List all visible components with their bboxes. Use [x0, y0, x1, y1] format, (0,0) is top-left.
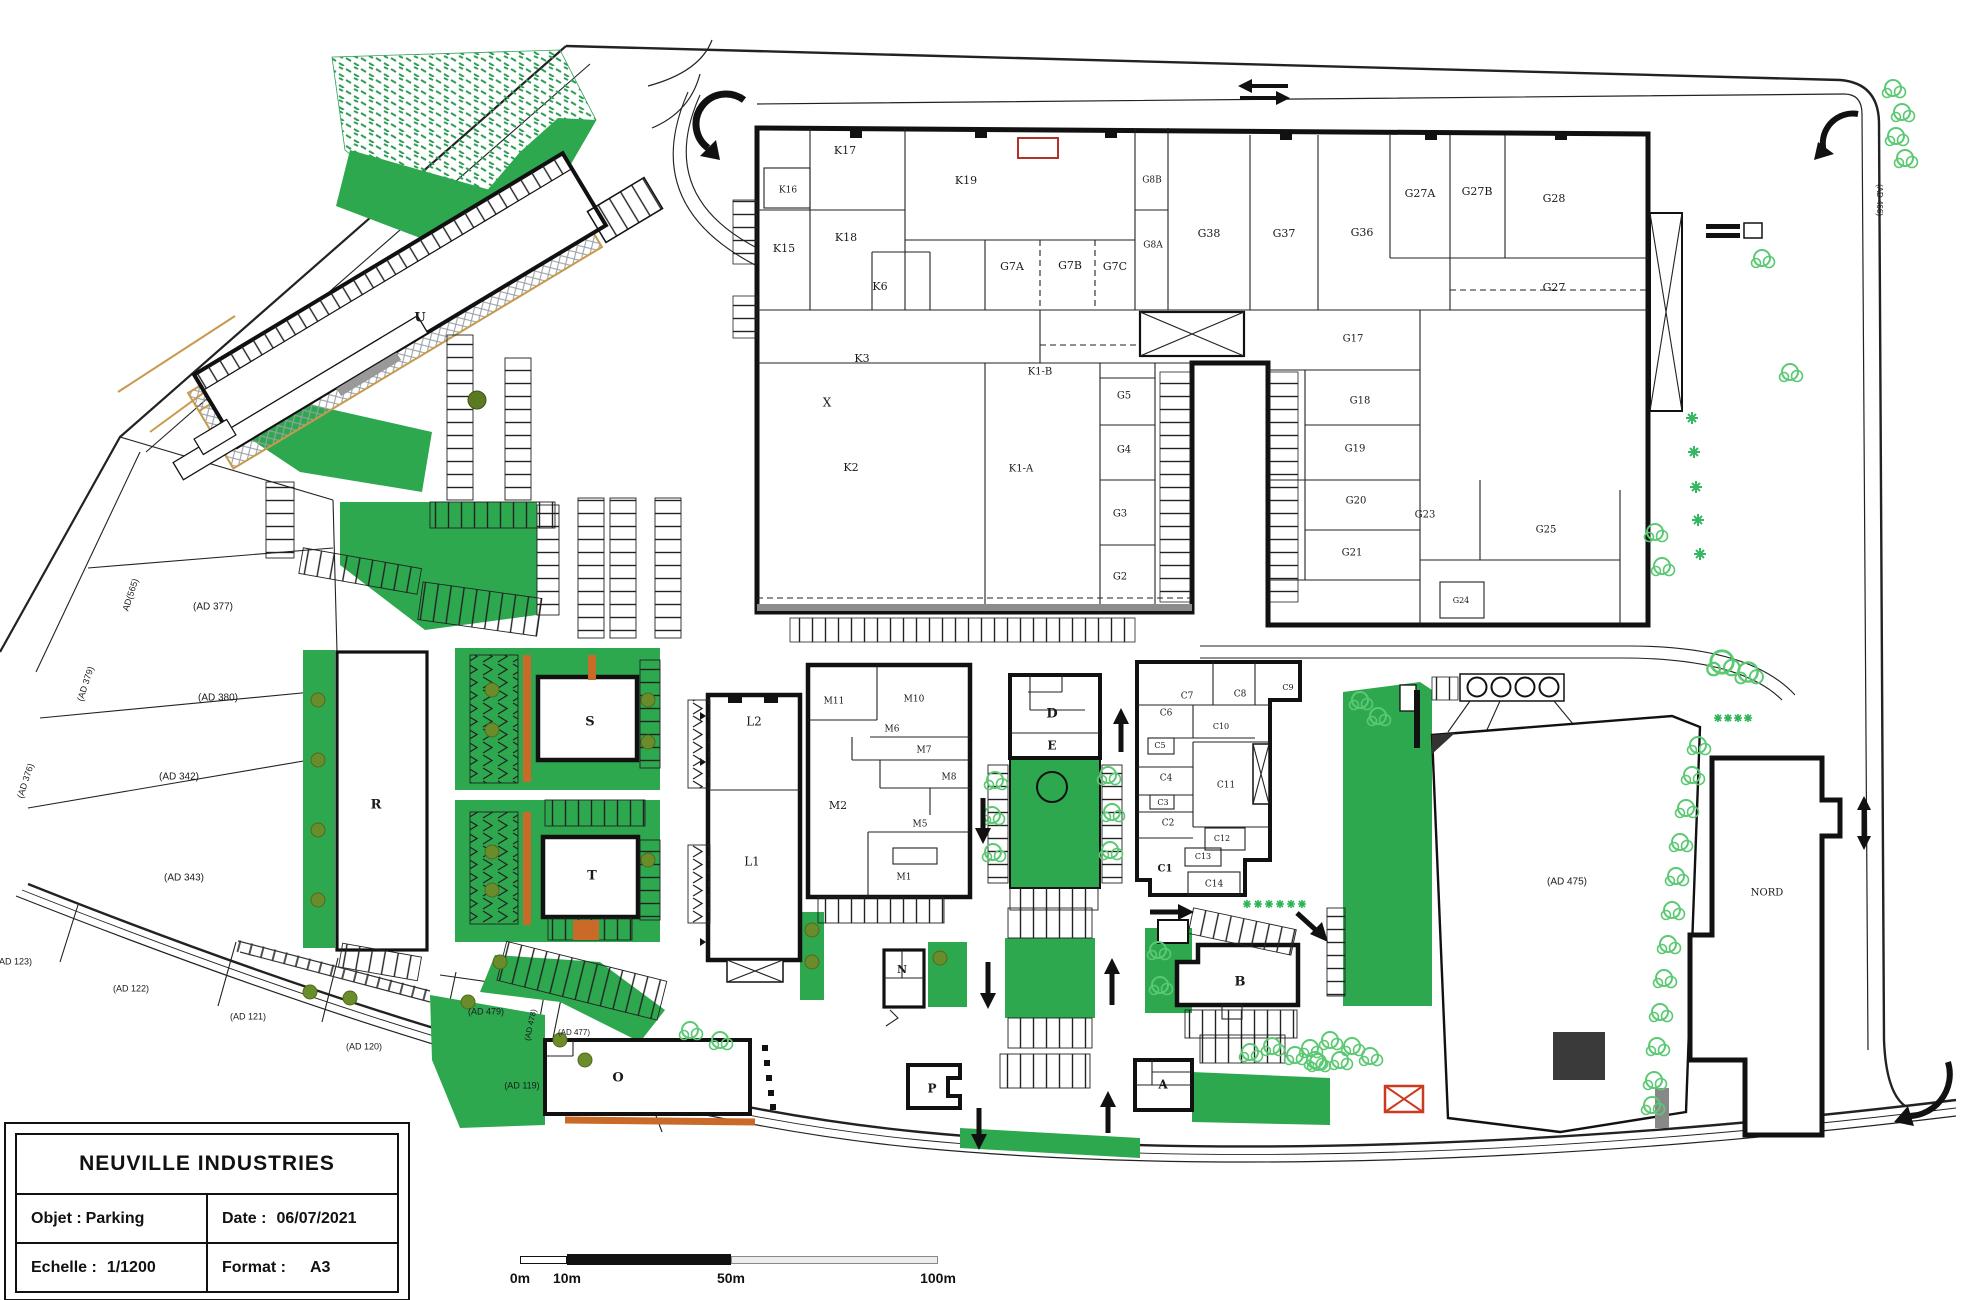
right-zone	[1200, 646, 1840, 1135]
label-c1: C1	[1158, 864, 1173, 875]
label-ad342: (AD 342)	[159, 772, 199, 783]
label-g17: G17	[1343, 334, 1364, 345]
stairwell-right-icon	[1650, 213, 1682, 411]
label-m7: M7	[917, 746, 932, 756]
label-m5: M5	[913, 820, 928, 830]
label-g3: G3	[1113, 509, 1127, 520]
label-g7c: G7C	[1103, 260, 1127, 273]
label-m8: M8	[942, 773, 957, 783]
label-c9: C9	[1282, 683, 1293, 692]
label-e: E	[1047, 739, 1056, 753]
label-a: A	[1157, 1078, 1168, 1092]
label-m11: M11	[824, 697, 845, 707]
site-plan-page: K17K16K15K18K6K19G8BG8AG7AG7BG7CG38G37G3…	[0, 0, 1984, 1300]
label-k16: K16	[779, 186, 797, 196]
label-g36: G36	[1351, 226, 1374, 239]
label-c11: C11	[1217, 781, 1235, 791]
label-g8a: G8A	[1143, 241, 1163, 251]
label-ad123: (AD 123)	[0, 956, 32, 966]
curved-arrow-icon	[696, 94, 744, 160]
label-k17: K17	[834, 144, 856, 157]
label-k6: K6	[872, 280, 887, 293]
objet-cell: Objet :Parking	[17, 1195, 206, 1242]
label-ad380: (AD 380)	[198, 693, 238, 704]
label-k3: K3	[854, 352, 869, 365]
building-n	[884, 950, 924, 1026]
building-o	[545, 1040, 776, 1114]
curved-arrow-icon	[1814, 114, 1858, 160]
roundabout	[1432, 674, 1578, 732]
label-ad477: (AD 477)	[558, 1028, 590, 1037]
label-m1: M1	[897, 873, 912, 883]
objet-value: Parking	[86, 1210, 145, 1228]
site-plan-drawing: K17K16K15K18K6K19G8BG8AG7AG7BG7CG38G37G3…	[0, 0, 1984, 1300]
label-ad475: (AD 475)	[1547, 877, 1587, 888]
label-c13: C13	[1195, 852, 1211, 861]
label-m2: M2	[829, 799, 847, 812]
label-g7a: G7A	[1000, 260, 1025, 273]
label-t: T	[587, 869, 597, 884]
date-label: Date :	[222, 1210, 266, 1228]
label-g27b: G27B	[1462, 185, 1493, 198]
label-c5: C5	[1154, 741, 1165, 750]
label-ad119: (AD 119)	[504, 1080, 539, 1090]
building-l	[700, 695, 800, 982]
label-g4: G4	[1117, 445, 1131, 456]
building-nord	[1690, 758, 1840, 1135]
label-m6: M6	[885, 725, 900, 735]
stairwell-icon	[1140, 312, 1244, 356]
label-k1a: K1-A	[1009, 464, 1034, 475]
label-g8b: G8B	[1142, 176, 1162, 186]
echelle-label: Echelle :	[31, 1259, 97, 1277]
scale-100m: 100m	[920, 1270, 956, 1286]
label-g20: G20	[1346, 496, 1367, 507]
label-ad122: (AD 122)	[113, 983, 149, 993]
arrow-down-right-icon	[1297, 913, 1328, 942]
label-c6: C6	[1160, 709, 1173, 719]
label-g7b: G7B	[1058, 259, 1082, 272]
title-block: NEUVILLE INDUSTRIES Objet :Parking Date …	[4, 1122, 410, 1300]
label-k1b: K1-B	[1028, 367, 1053, 378]
label-n: N	[897, 963, 907, 976]
scale-0m: 0m	[510, 1270, 530, 1286]
label-m10: M10	[904, 695, 925, 705]
label-c4: C4	[1160, 774, 1173, 784]
curved-arrow-icon	[1894, 1062, 1950, 1126]
label-c2: C2	[1162, 819, 1175, 829]
label-g25: G25	[1536, 525, 1557, 536]
label-g18: G18	[1350, 396, 1371, 407]
company-title: NEUVILLE INDUSTRIES	[17, 1135, 397, 1193]
kiosk-box	[1158, 920, 1188, 943]
format-cell: Format : A3	[206, 1244, 397, 1291]
objet-label: Objet :	[31, 1210, 82, 1228]
label-g21: G21	[1342, 548, 1363, 559]
label-l2: L2	[746, 715, 762, 729]
label-ad479: (AD 479)	[468, 1006, 504, 1016]
label-c12: C12	[1214, 834, 1230, 843]
label-o: O	[612, 1071, 623, 1086]
label-k19: K19	[955, 174, 977, 187]
label-g27: G27	[1543, 281, 1566, 294]
label-k18: K18	[835, 231, 857, 244]
label-ad376: (AD 376)	[15, 762, 36, 799]
label-g27a: G27A	[1405, 187, 1437, 200]
label-g37: G37	[1273, 227, 1296, 240]
label-g19: G19	[1345, 444, 1366, 455]
label-g5: G5	[1117, 391, 1131, 402]
arrow-right-icon	[1150, 904, 1194, 920]
arrow-up-icon	[1100, 1091, 1116, 1133]
echelle-value: 1/1200	[107, 1259, 156, 1277]
arrow-updown-icon	[1857, 796, 1871, 850]
label-c3: C3	[1157, 798, 1168, 807]
label-g28: G28	[1543, 192, 1566, 205]
dark-structure	[1553, 1032, 1605, 1080]
label-ad565: AD(565)	[120, 577, 140, 612]
label-d: D	[1046, 707, 1057, 722]
label-xmark: X	[823, 396, 832, 410]
red-cross-box	[1385, 1086, 1423, 1112]
tree-symbol	[468, 391, 486, 409]
label-ad121: (AD 121)	[230, 1011, 266, 1021]
arrow-up-icon	[1113, 708, 1129, 752]
arrow-up-icon	[1104, 958, 1120, 1005]
label-ad120: (AD 120)	[346, 1041, 382, 1051]
building-complex	[733, 128, 1682, 642]
label-g23: G23	[1415, 510, 1436, 521]
label-r: R	[371, 798, 382, 813]
car-icon	[1706, 223, 1762, 238]
arrow-down-icon	[980, 962, 996, 1009]
label-g38: G38	[1198, 227, 1221, 240]
label-s: S	[585, 715, 594, 730]
title-block-inner: NEUVILLE INDUSTRIES Objet :Parking Date …	[15, 1133, 399, 1293]
parcel-ad475	[1432, 716, 1700, 1132]
two-way-arrow-icon	[1238, 79, 1290, 105]
scale-50m: 50m	[717, 1270, 745, 1286]
label-c14: C14	[1205, 880, 1224, 890]
echelle-cell: Echelle : 1/1200	[17, 1244, 206, 1291]
label-u: U	[414, 311, 426, 326]
building-r	[337, 652, 427, 950]
label-b: B	[1235, 975, 1246, 990]
label-k2: K2	[843, 461, 858, 474]
date-value: 06/07/2021	[276, 1210, 356, 1228]
label-ad343: (AD 343)	[164, 873, 204, 884]
date-cell: Date : 06/07/2021	[206, 1195, 397, 1242]
format-value: A3	[310, 1259, 330, 1277]
label-c10: C10	[1213, 722, 1229, 731]
label-p: P	[927, 1082, 936, 1096]
format-label: Format :	[222, 1259, 286, 1277]
label-c8: C8	[1234, 690, 1247, 700]
label-l1: L1	[744, 855, 760, 869]
label-g24: G24	[1453, 596, 1470, 605]
label-c7: C7	[1181, 692, 1194, 702]
label-k15: K15	[773, 242, 795, 255]
label-nord: NORD	[1751, 888, 1784, 899]
scale-10m: 10m	[553, 1270, 581, 1286]
label-ad377: (AD 377)	[193, 602, 233, 613]
label-ad379: (AD 379)	[75, 665, 96, 702]
label-ad466: (AD 466)	[1875, 184, 1884, 216]
label-g2: G2	[1113, 572, 1127, 583]
